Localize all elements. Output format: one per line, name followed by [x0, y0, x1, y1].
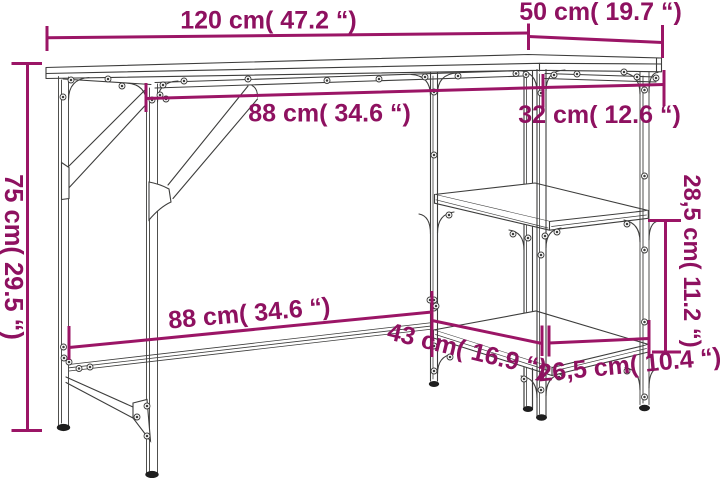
svg-text:75 cm( 29.5 “): 75 cm( 29.5 “): [0, 174, 27, 340]
svg-text:50 cm( 19.7 “): 50 cm( 19.7 “): [519, 0, 682, 26]
svg-text:88 cm( 34.6 “): 88 cm( 34.6 “): [248, 100, 411, 128]
svg-text:120 cm( 47.2 “): 120 cm( 47.2 “): [180, 7, 357, 35]
svg-text:88 cm( 34.6 “): 88 cm( 34.6 “): [167, 292, 331, 334]
svg-text:32 cm( 12.6 “): 32 cm( 12.6 “): [518, 101, 681, 129]
svg-text:28,5 cm( 11.2 “): 28,5 cm( 11.2 “): [678, 174, 705, 347]
